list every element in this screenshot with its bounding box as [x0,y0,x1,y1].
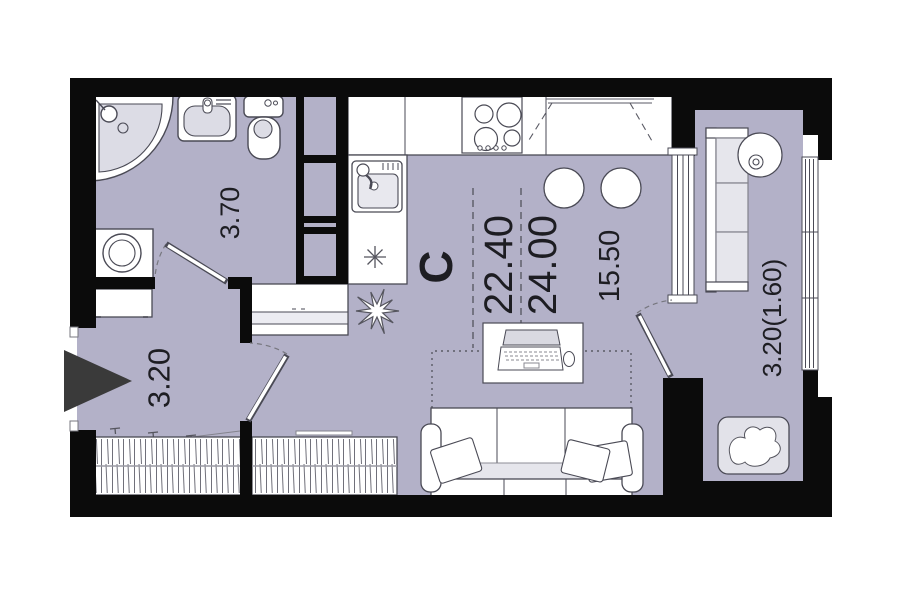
shaft-wall-right [336,96,348,284]
wall-bathroom-bottom [96,277,155,289]
label-bathroom-depth: 3.70 [215,187,245,240]
window-sill [668,148,697,155]
cooktop-knob2 [486,146,490,150]
sink-faucet-knob [205,100,211,106]
shaft-rung3 [296,227,348,234]
wall-hall-partition [240,277,252,343]
label-hallway-width: 3.20 [142,348,177,408]
wall-right-narrow [803,368,818,399]
shaft-rung2 [296,216,348,223]
wall-partition-bottom [663,378,703,495]
desk [483,323,583,383]
label-room-depth: 15.50 [594,230,626,303]
burner-small [475,105,493,123]
balcony-table [738,133,782,177]
bar-stool2 [601,168,641,208]
wardrobe-shelf [296,431,352,435]
shaft-wall-left [296,96,304,284]
dresser [250,284,348,335]
north-indicator: С [410,250,462,283]
shaft-rung-bottom [296,276,348,284]
wall-right-lower [803,397,832,517]
wall-left-upper [70,78,96,328]
wall-top-right-corner [803,78,832,135]
kitchen-faucet-icon [357,164,369,176]
hallway-cabinet [92,289,152,317]
bench-top-rail [706,128,748,138]
label-total-area: 24.00 [521,215,565,315]
wall-top-balcony [672,78,803,110]
shaft-rung [296,155,348,163]
wall-top-right-step [818,135,832,160]
entrance-frame-top [70,327,78,337]
toilet-bowl-inner [254,120,272,138]
label-living-area: 22.40 [477,215,521,315]
cooktop-knob4 [502,146,506,150]
kitchen-sink [352,161,402,212]
cooktop-knob3 [494,146,498,150]
toilet-button [265,100,271,106]
window-sill2 [668,295,697,303]
burner-small2 [504,130,520,146]
bench-back [706,128,716,292]
floor-plan: С 22.40 24.00 15.50 3.70 3.20 3.20(1.60) [0,0,900,600]
bench-cushion3 [716,232,748,282]
toilet-tank [244,96,283,117]
burner-large [497,103,521,127]
laptop-touchpad [524,363,539,368]
floor-plan-drawing: С 22.40 24.00 15.50 3.70 3.20 3.20(1.60) [0,0,900,600]
bar-stool [544,168,584,208]
sofa [421,408,643,498]
bench-cushion2 [716,183,748,232]
wall-bottom [70,495,710,517]
label-balcony-area: 3.20(1.60) [757,259,787,378]
cooktop-knob [478,146,482,150]
bench-bottom-rail [706,282,748,291]
wall-hall-post [240,421,252,497]
cooktop [462,97,522,153]
toilet-button2 [274,101,278,105]
mouse-icon [564,352,575,367]
laptop-screen [503,330,560,345]
entrance-frame-bottom [70,421,78,431]
